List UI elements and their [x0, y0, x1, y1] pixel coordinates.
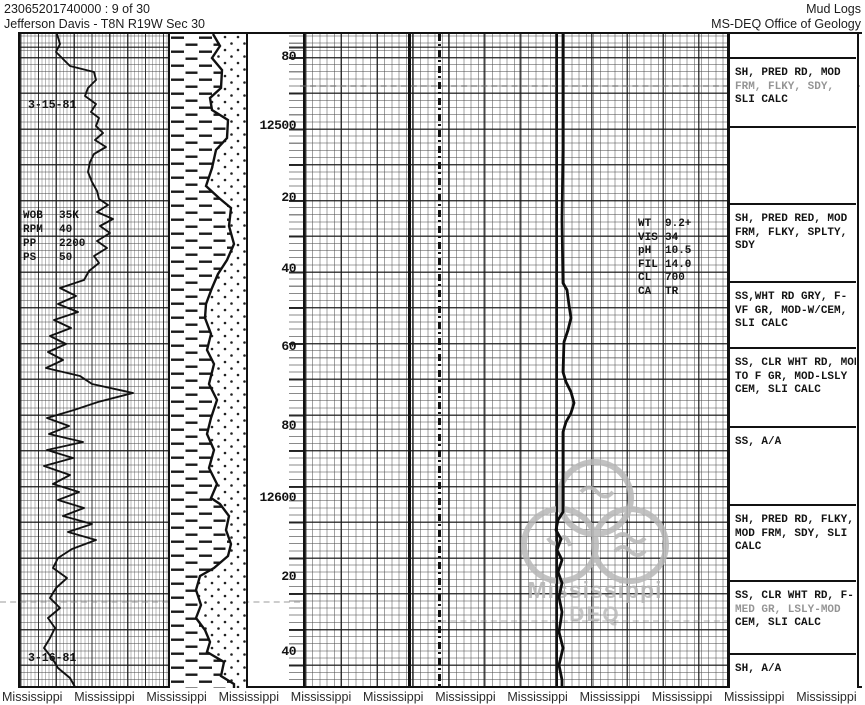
data-value: 700 — [665, 272, 685, 286]
description-block — [730, 34, 856, 57]
data-row: CATR — [638, 286, 691, 300]
data-value: 35K — [59, 209, 79, 223]
data-value: 10.5 — [665, 245, 691, 259]
data-value: 14.0 — [665, 259, 691, 273]
depth-label: 12600 — [248, 490, 296, 506]
description-block: SS, CLR WHT RD, MODTO F GR, MOD-LSLYCEM,… — [730, 347, 856, 426]
track-divider-line — [408, 34, 411, 688]
data-label: CL — [638, 272, 665, 286]
rop-curve-layer — [18, 34, 168, 688]
description-block — [730, 126, 856, 203]
data-row: pH10.5 — [638, 245, 691, 259]
bottom-watermark-text: Mississippi — [2, 690, 62, 704]
data-value: 2200 — [59, 237, 85, 251]
description-block: SS, CLR WHT RD, F-MED GR, LSLY-MODCEM, S… — [730, 580, 856, 653]
description-text: MED GR, LSLY-MOD — [735, 604, 856, 618]
bottom-watermark-text: Mississippi — [435, 690, 495, 704]
description-block: SS,WHT RD GRY, F-VF GR, MOD-W/CEM,SLI CA… — [730, 281, 856, 347]
date-annotation: 3-16-81 — [28, 652, 76, 665]
lithology-column — [170, 34, 246, 688]
data-label: PS — [23, 251, 59, 265]
description-text: SLI CALC — [735, 94, 856, 108]
data-label: WOB — [23, 209, 59, 223]
data-label: pH — [638, 245, 665, 259]
rop-curve — [44, 34, 133, 687]
bottom-watermark-text: Mississippi — [796, 690, 856, 704]
description-text: FRM, FLKY, SDY, — [735, 81, 856, 95]
data-value: 34 — [665, 232, 678, 246]
data-label: RPM — [23, 223, 59, 237]
bottom-watermark-text: Mississippi — [724, 690, 784, 704]
description-text: CALC — [735, 541, 856, 555]
data-row: PS50 — [23, 251, 85, 265]
gas-curve — [556, 34, 574, 688]
depth-label: 12500 — [248, 118, 296, 134]
depth-label: 20 — [248, 569, 296, 585]
description-block: SH, PRED RD, MODFRM, FLKY, SDY,SLI CALC — [730, 57, 856, 126]
depth-label: 20 — [248, 190, 296, 206]
description-text: FRM, FLKY, SPLTY, — [735, 227, 856, 241]
depth-label: 40 — [248, 261, 296, 277]
description-text: SLI CALC — [735, 318, 856, 332]
bottom-watermark-row: MississippiMississippiMississippiMississ… — [0, 688, 865, 705]
description-text: CEM, SLI CALC — [735, 617, 856, 631]
gas-curve-layer — [540, 34, 590, 688]
description-block: SH, A/A — [730, 653, 856, 688]
log-sheet: Mississippi DEQ — [0, 0, 865, 705]
description-text: SS, CLR WHT RD, F- — [735, 590, 856, 604]
data-label: PP — [23, 237, 59, 251]
data-row: VIS34 — [638, 232, 691, 246]
data-value: 9.2+ — [665, 218, 691, 232]
data-row: FIL14.0 — [638, 259, 691, 273]
description-text: SS, CLR WHT RD, MOD — [735, 357, 856, 371]
description-text: TO F GR, MOD-LSLY — [735, 371, 856, 385]
description-block: SH, PRED RD, FLKY,MOD FRM, SDY, SLICALC — [730, 504, 856, 580]
data-value: TR — [665, 286, 678, 300]
bottom-watermark-text: Mississippi — [74, 690, 134, 704]
description-text: SS,WHT RD GRY, F- — [735, 291, 856, 305]
description-text: SH, A/A — [735, 663, 856, 677]
mud-properties-block: WT9.2+VIS34pH10.5FIL14.0CL700CATR — [638, 218, 691, 299]
bottom-watermark-text: Mississippi — [291, 690, 351, 704]
description-text: VF GR, MOD-W/CEM, — [735, 305, 856, 319]
description-text: MOD FRM, SDY, SLI — [735, 528, 856, 542]
description-block: SS, A/A — [730, 426, 856, 504]
data-value: 40 — [59, 223, 72, 237]
depth-label: 60 — [248, 339, 296, 355]
description-text: SS, A/A — [735, 436, 856, 450]
depth-label: 80 — [248, 49, 296, 65]
data-value: 50 — [59, 251, 72, 265]
description-text: CEM, SLI CALC — [735, 384, 856, 398]
date-annotation: 3-15-81 — [28, 99, 76, 112]
description-text: SDY — [735, 240, 856, 254]
depth-label: 40 — [248, 644, 296, 660]
description-text: SH, PRED RD, FLKY, — [735, 514, 856, 528]
data-label: VIS — [638, 232, 665, 246]
data-label: WT — [638, 218, 665, 232]
description-block: SH, PRED RED, MODFRM, FLKY, SPLTY,SDY — [730, 203, 856, 281]
data-row: PP2200 — [23, 237, 85, 251]
data-label: CA — [638, 286, 665, 300]
data-row: WOB35K — [23, 209, 85, 223]
bottom-watermark-text: Mississippi — [219, 690, 279, 704]
bottom-watermark-text: Mississippi — [652, 690, 712, 704]
data-row: RPM40 — [23, 223, 85, 237]
depth-label: 80 — [248, 418, 296, 434]
description-column: SH, PRED RD, MODFRM, FLKY, SDY,SLI CALCS… — [727, 34, 859, 688]
mud-log-page: 23065201740000 : 9 of 30 Jefferson Davis… — [0, 0, 865, 705]
drilling-parameters-block: WOB35KRPM40PP2200PS50 — [23, 209, 85, 265]
bottom-watermark-text: Mississippi — [580, 690, 640, 704]
bottom-watermark-text: Mississippi — [146, 690, 206, 704]
bottom-watermark-text: Mississippi — [507, 690, 567, 704]
description-text: SH, PRED RED, MOD — [735, 213, 856, 227]
data-row: WT9.2+ — [638, 218, 691, 232]
data-label: FIL — [638, 259, 665, 273]
data-row: CL700 — [638, 272, 691, 286]
dash-dot-reference-line — [438, 34, 441, 688]
bottom-watermark-text: Mississippi — [363, 690, 423, 704]
description-text: SH, PRED RD, MOD — [735, 67, 856, 81]
